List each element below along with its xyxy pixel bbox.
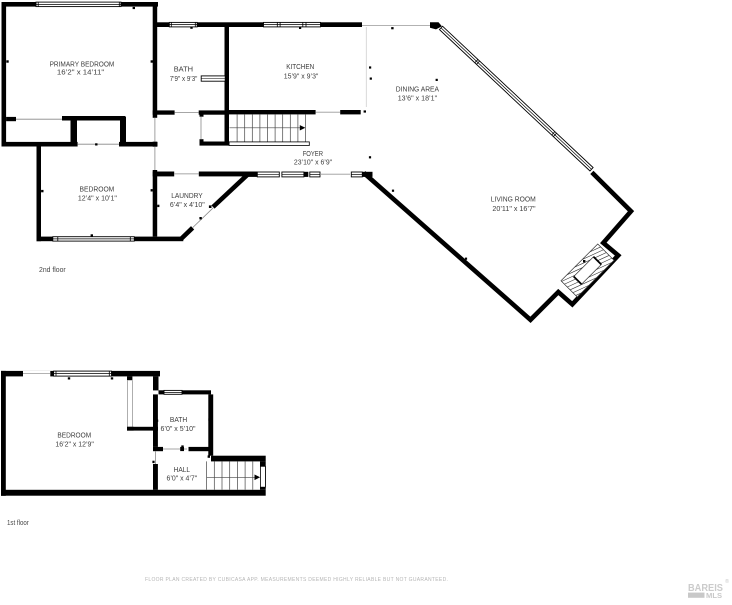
svg-text:KITCHEN: KITCHEN: [286, 62, 314, 71]
svg-text:2nd floor: 2nd floor: [39, 265, 66, 274]
svg-text:20’11" x 16’7": 20’11" x 16’7": [492, 204, 535, 213]
svg-text:MLS: MLS: [706, 591, 722, 600]
svg-text:®: ®: [725, 578, 729, 585]
svg-text:7’9" x 9’3": 7’9" x 9’3": [170, 74, 198, 83]
svg-text:LAUNDRY: LAUNDRY: [171, 191, 203, 200]
svg-text:1st floor: 1st floor: [7, 518, 29, 527]
svg-text:12’4" x 10’1": 12’4" x 10’1": [78, 194, 117, 203]
svg-text:16’2" x 12’9": 16’2" x 12’9": [55, 440, 94, 449]
svg-text:FLOOR PLAN CREATED BY CUBICASA: FLOOR PLAN CREATED BY CUBICASA APP. MEAS…: [145, 577, 448, 583]
svg-text:DINING AREA: DINING AREA: [396, 84, 440, 93]
svg-text:16’2" x 14’11": 16’2" x 14’11": [57, 68, 105, 77]
svg-text:6’0" x 5’10": 6’0" x 5’10": [161, 424, 196, 433]
svg-text:BEDROOM: BEDROOM: [57, 431, 91, 440]
svg-text:BEDROOM: BEDROOM: [80, 185, 115, 194]
svg-text:23’10" x 6’9": 23’10" x 6’9": [294, 158, 332, 167]
svg-text:13’6" x 18’1": 13’6" x 18’1": [398, 94, 438, 103]
svg-text:BATH: BATH: [174, 64, 193, 73]
svg-text:6’0" x 4’7": 6’0" x 4’7": [167, 473, 198, 482]
svg-text:BATH: BATH: [170, 415, 187, 424]
svg-text:15’9" x 9’3": 15’9" x 9’3": [284, 71, 319, 80]
svg-text:6’4" x 4’10": 6’4" x 4’10": [170, 200, 205, 209]
svg-text:LIVING ROOM: LIVING ROOM: [491, 194, 536, 203]
